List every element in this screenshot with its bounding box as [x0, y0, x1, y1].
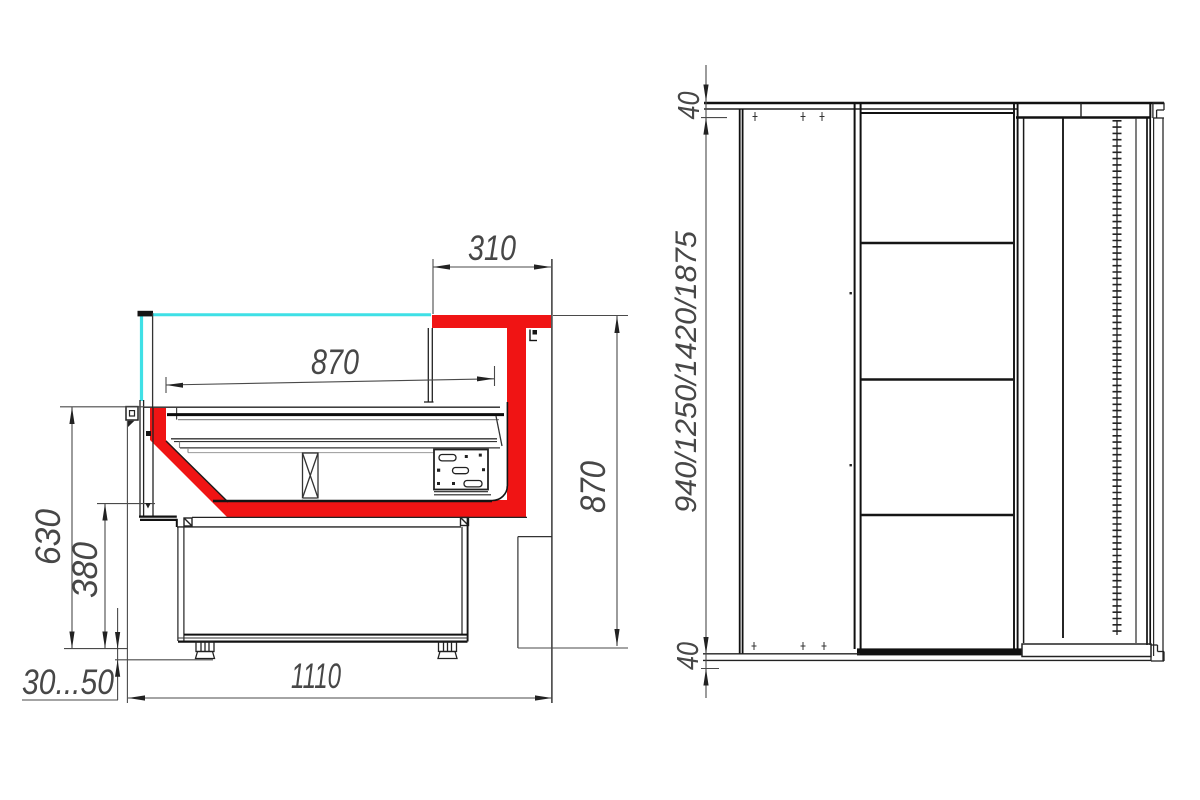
svg-text:380: 380: [66, 541, 105, 598]
svg-text:630: 630: [29, 508, 68, 565]
svg-text:40: 40: [670, 642, 705, 670]
svg-text:870: 870: [574, 461, 613, 513]
svg-text:40: 40: [671, 92, 706, 120]
svg-text:310: 310: [468, 229, 516, 268]
svg-text:870: 870: [311, 343, 359, 382]
svg-text:940/1250/1420/1875: 940/1250/1420/1875: [670, 231, 703, 513]
svg-text:30...50: 30...50: [22, 663, 114, 702]
svg-text:1110: 1110: [291, 657, 341, 696]
